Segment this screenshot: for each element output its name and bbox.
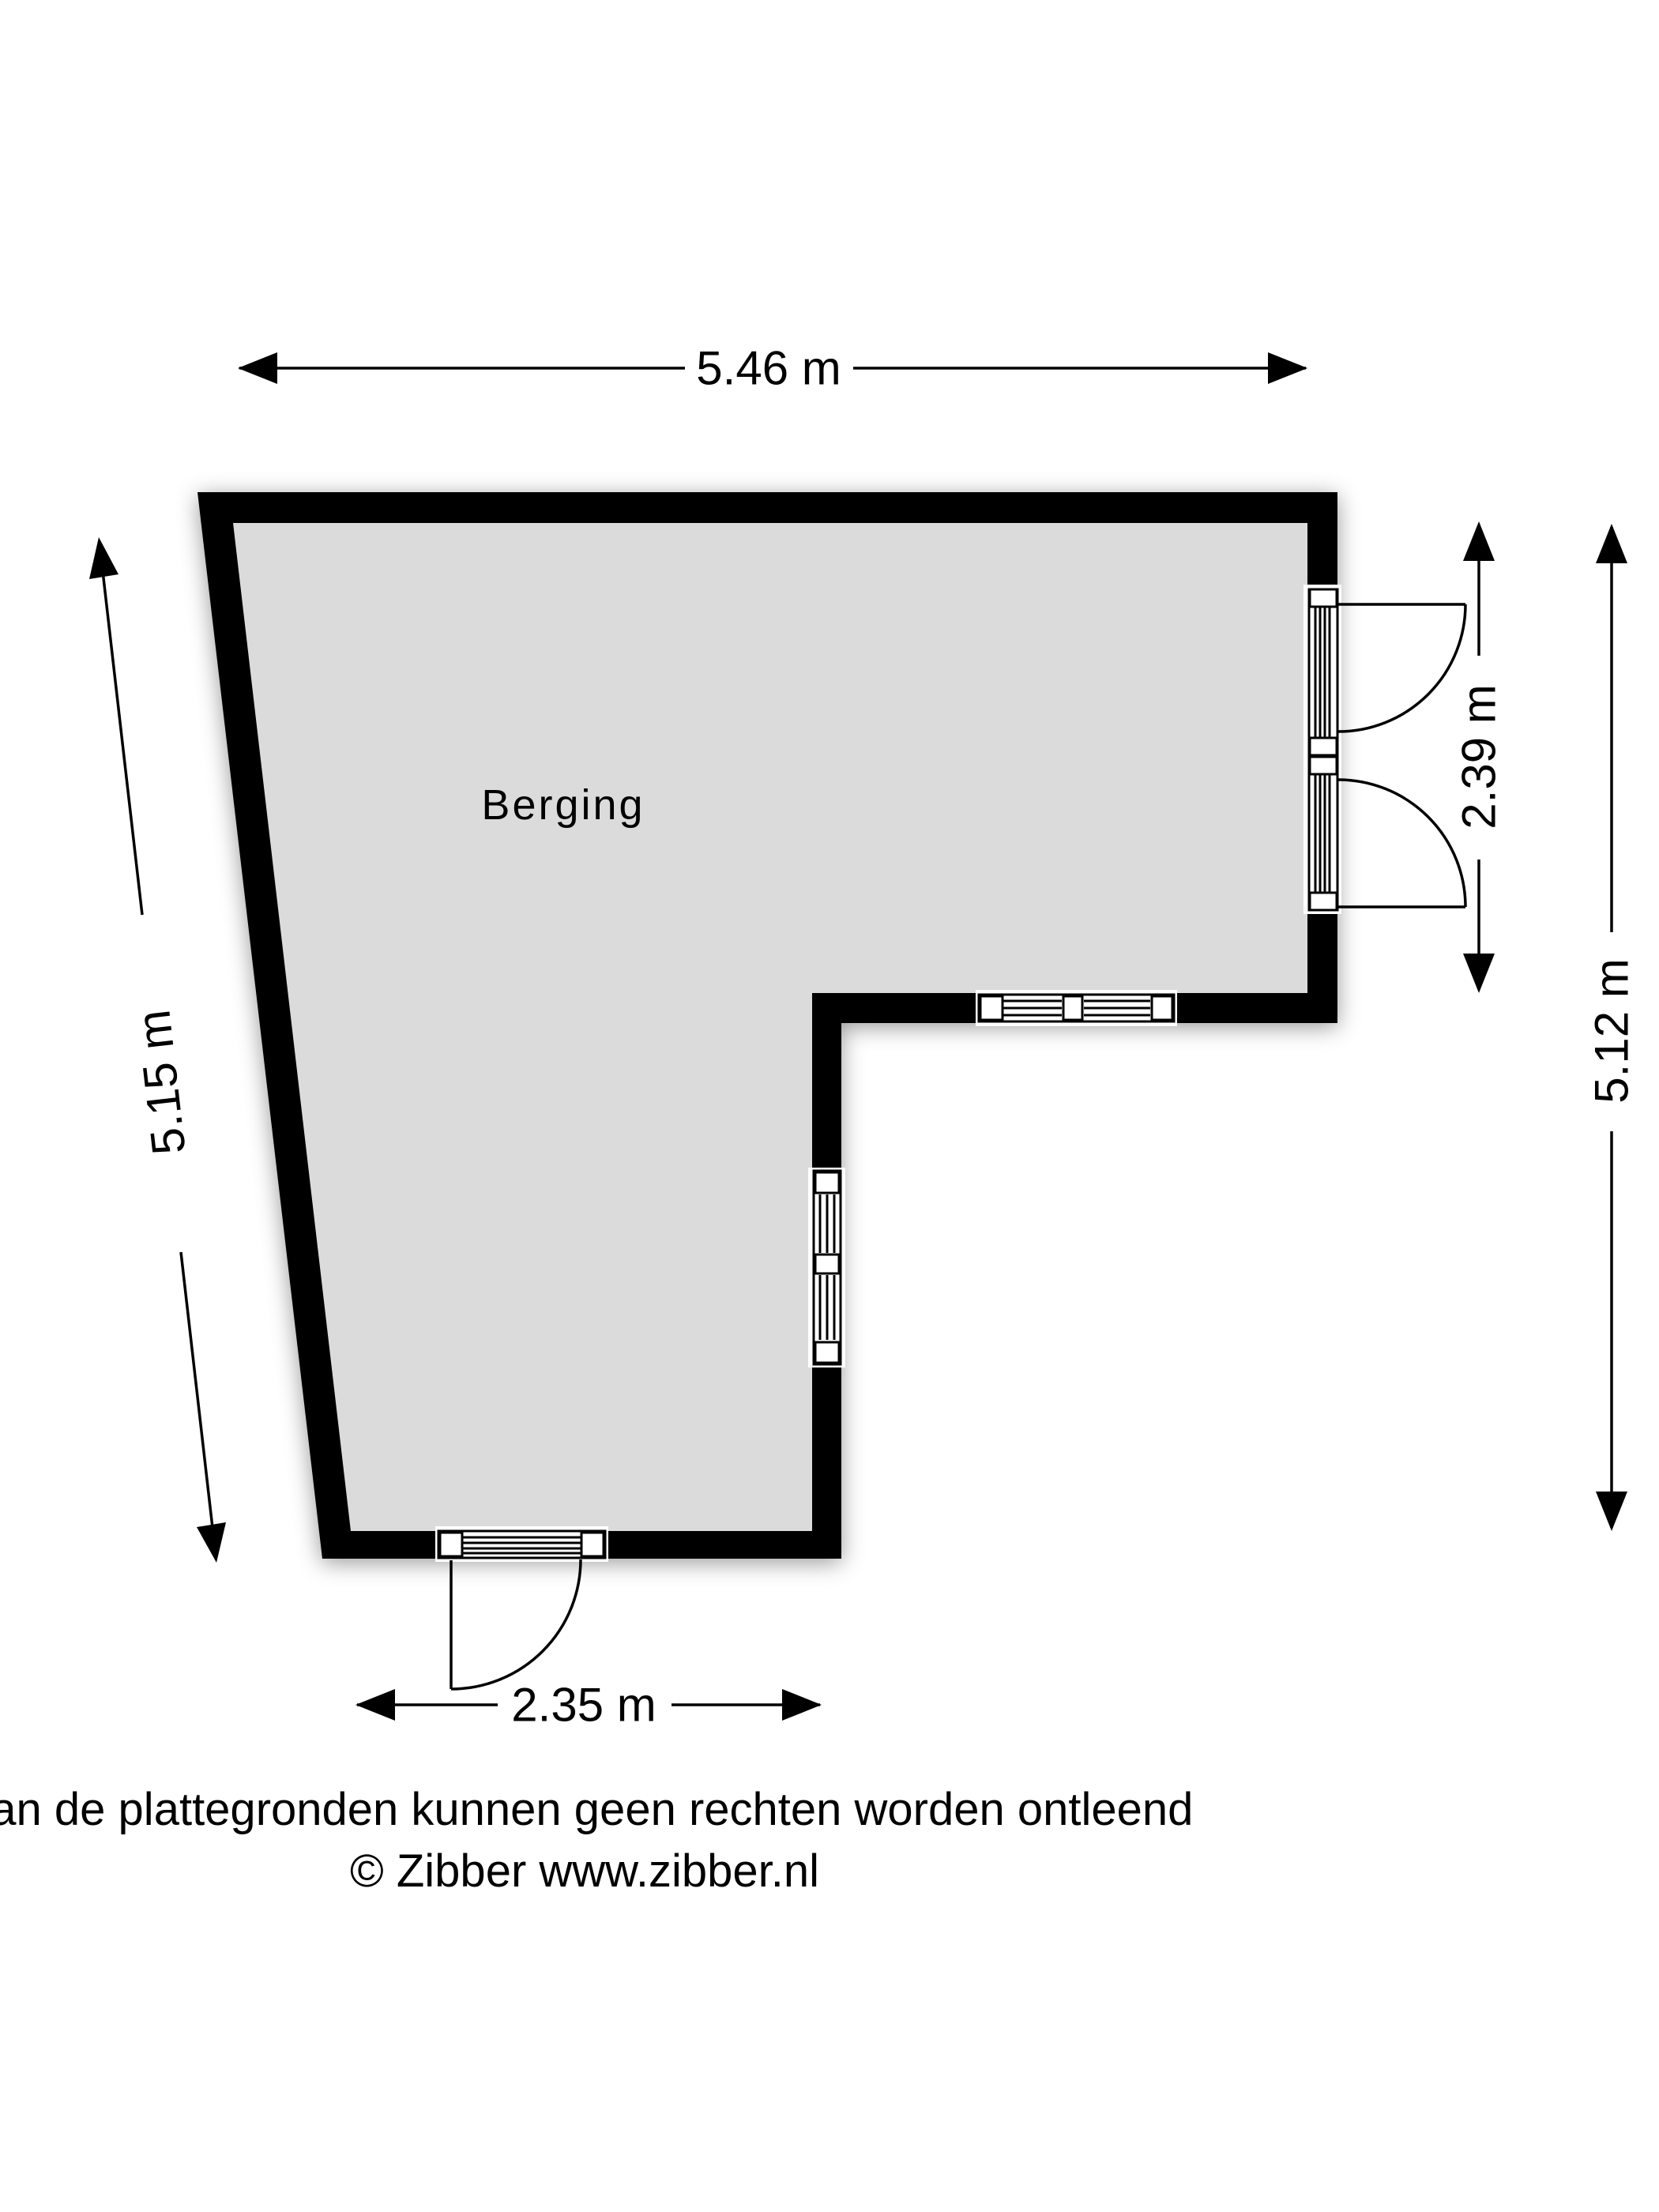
dimension-right-outer: 5.12 m [1586,524,1638,1531]
dimension-left: 5.15 m [89,537,226,1563]
window-notch-horizontal [976,990,1177,1026]
window-frame-box [815,1342,839,1363]
door-arc-upper [1338,604,1465,732]
door-frame-box [1310,738,1337,755]
door-arc-bottom [451,1559,581,1689]
arrowhead-left [355,1689,395,1721]
disclaimer-text: Aan de plattegronden kunnen geen rechten… [0,1784,1193,1835]
copyright-text: © Zibber www.zibber.nl [350,1845,819,1897]
door-frame-box [1310,757,1337,774]
arrowhead-right [1268,352,1307,384]
door-arc-lower [1338,780,1465,907]
dimension-top: 5.46 m [238,342,1307,395]
door-bottom [435,1526,608,1689]
dimension-right-inner: 2.39 m [1453,521,1506,993]
dimension-line [100,551,142,915]
door-frame-box [1310,589,1337,607]
arrowhead-down [197,1522,226,1563]
dimension-label-top: 5.46 m [696,342,841,395]
dimension-label-left: 5.15 m [126,1007,195,1157]
window-frame-box [815,1172,839,1193]
floorplan-canvas: Berging 5.46 m 5.15 m 2.39 m [0,0,1659,2212]
arrowhead-down [1463,954,1495,993]
door-frame-box [440,1533,462,1556]
dimension-label-bottom: 2.35 m [511,1679,656,1732]
arrowhead-up [1596,524,1627,563]
window-frame-box [1152,996,1172,1020]
dimension-bottom: 2.35 m [355,1679,822,1732]
dimension-label-right-outer: 5.12 m [1586,958,1638,1103]
window-frame-box [980,996,1003,1020]
window-notch-vertical [808,1168,845,1367]
arrowhead-up [1463,521,1495,561]
arrowhead-up [89,537,118,579]
arrowhead-down [1596,1492,1627,1531]
window-frame-box [815,1255,839,1273]
footer: Aan de plattegronden kunnen geen rechten… [0,1784,1193,1897]
arrowhead-right [782,1689,822,1721]
dimension-label-right-inner: 2.39 m [1453,684,1506,829]
double-door-right [1303,585,1465,914]
floorplan-page: Berging 5.46 m 5.15 m 2.39 m [0,0,1659,2212]
door-frame-box [581,1533,604,1556]
dimension-line [181,1252,215,1548]
door-frame-box [1310,893,1337,910]
window-frame-box [1063,996,1082,1020]
floor [233,523,1307,1531]
room-label: Berging [481,781,645,829]
arrowhead-left [238,352,277,384]
